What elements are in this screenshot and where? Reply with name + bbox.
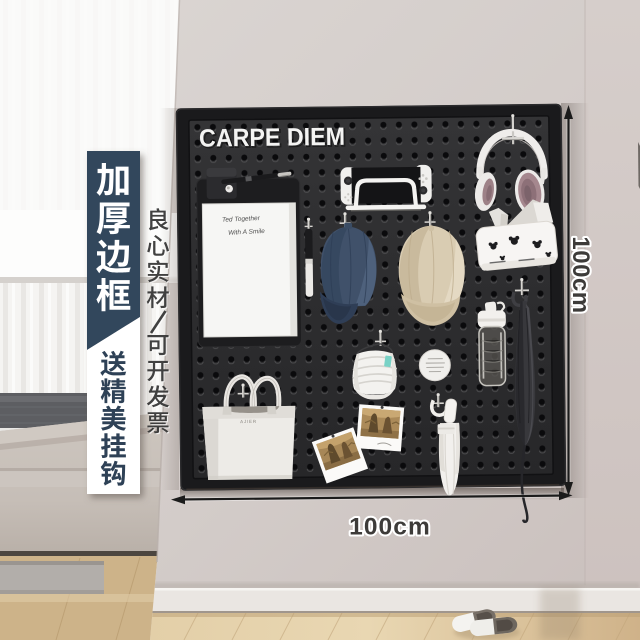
svg-text:100cm: 100cm — [567, 236, 594, 313]
svg-text:CARPE DIEM: CARPE DIEM — [199, 123, 345, 153]
svg-text:100cm: 100cm — [349, 514, 431, 541]
svg-text:AJIER: AJIER — [240, 419, 257, 424]
